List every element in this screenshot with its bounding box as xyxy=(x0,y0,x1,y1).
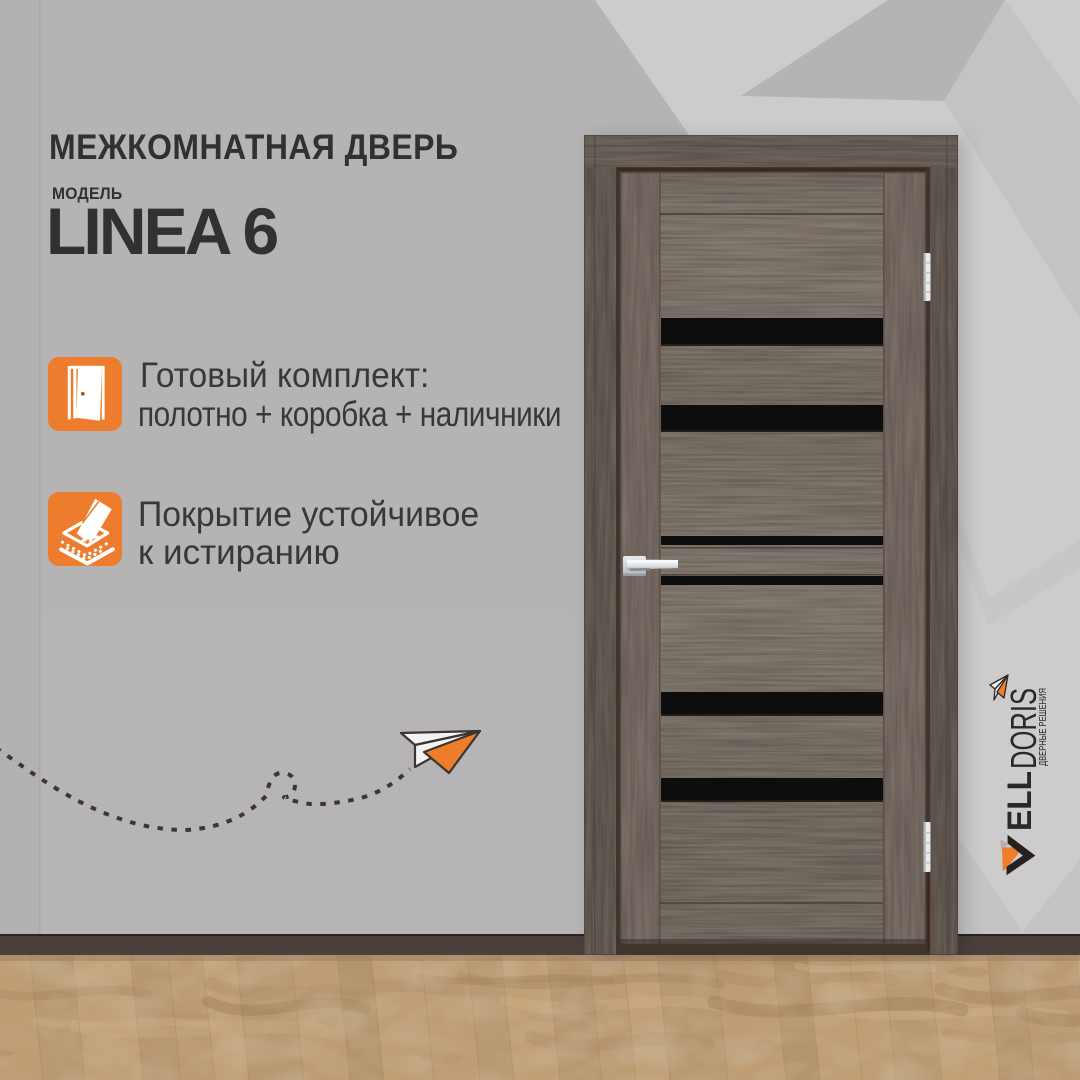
svg-text:ELL: ELL xyxy=(1001,771,1039,831)
svg-text:ДВЕРНЫЕ РЕШЕНИЯ: ДВЕРНЫЕ РЕШЕНИЯ xyxy=(1038,688,1049,766)
